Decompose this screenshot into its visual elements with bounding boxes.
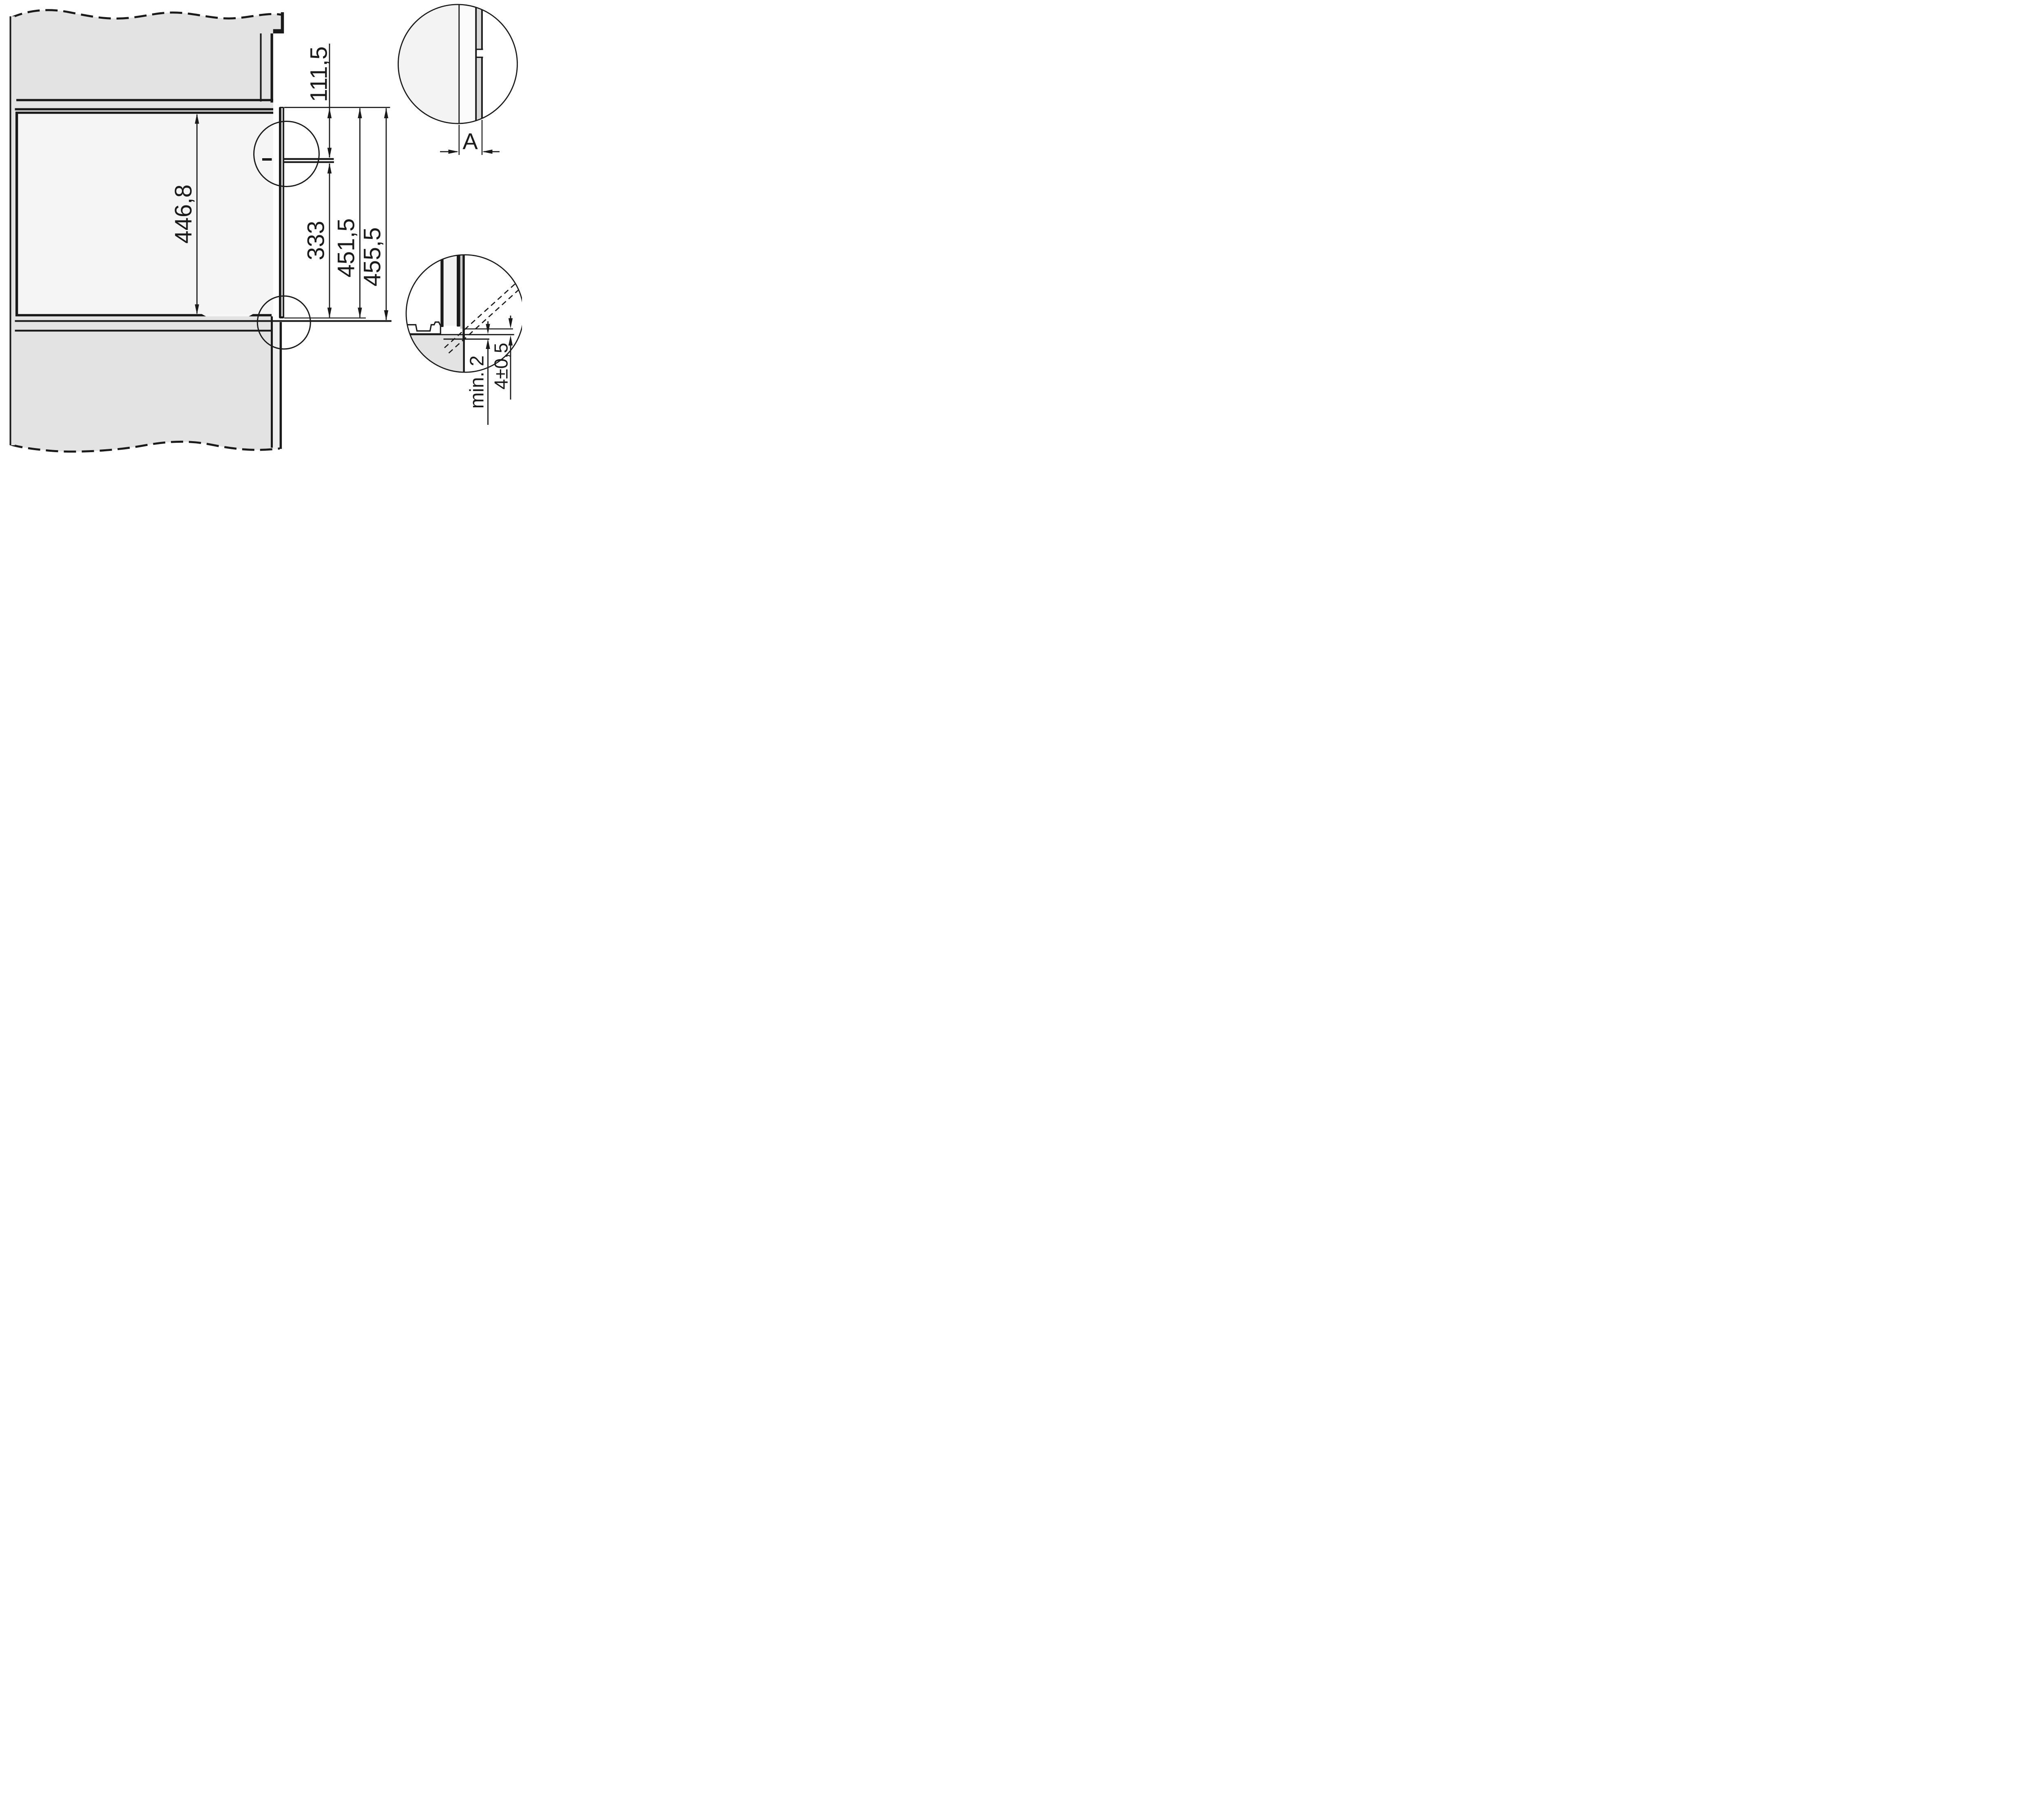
upper-appliance-front [281,12,284,29]
upper-cabinet-body [11,10,281,110]
front-frame-core [281,108,283,316]
detail-frame-core-strip [460,255,463,329]
arrow-up [384,108,388,118]
arrow-up [486,339,490,349]
detail-frame-strip-lower [477,57,481,125]
arrow-right [449,150,459,154]
arrow-down [509,318,513,329]
dimension-A: A [440,120,500,155]
dim-label-bracket-to-bottom: 333 [303,221,330,261]
dim-label-top-to-bracket: 111,5 [306,46,332,102]
detail-frame-right-bar [462,255,465,339]
lower-front-panel-core [273,322,280,449]
dim-label-A: A [462,128,478,154]
detail-shelf-profile [405,322,440,334]
dim-label-niche-height: 446,8 [170,184,197,243]
arrow-up [327,108,332,118]
detail-top-content [397,3,483,126]
mounting-bracket-stub [262,158,272,161]
upper-appliance-bottom-cap [273,29,284,34]
niche-interior [18,114,273,314]
dimension-reveal-tolerance: 4±0,5 [491,316,513,400]
dimension-bracket-to-bottom: 333 [303,163,332,318]
arrow-up [358,108,362,118]
left-wall-core [11,16,15,445]
left-side-wall [11,16,15,445]
dimension-front-frame-height: 451,5 [333,108,362,318]
detail-wall-strip [444,255,457,326]
dim-label-overall-front-height: 455,5 [359,227,386,286]
detail-lower-cabinet [405,336,464,374]
detail-view-top: A [397,3,517,155]
upper-cabinet-section [11,10,284,112]
detail-frame-left-bar [457,255,460,327]
dimension-min-clearance: min. 2 [467,321,490,425]
dim-label-min-clearance: min. 2 [467,356,488,409]
diagram-canvas: 446,8 111,5 333 451,5 455,5 [0,0,522,455]
detail-top-wall-area [397,3,459,126]
dim-label-front-frame-height: 451,5 [333,218,360,277]
rail-gap [11,110,273,112]
detail-top-gap-area [460,3,475,126]
detail-frame-strip-upper [477,3,481,49]
arrow-left [482,150,493,154]
lower-cabinet-body [11,316,280,452]
arrow-down [358,308,362,318]
dim-label-reveal-tolerance: 4±0,5 [491,343,512,390]
dimension-overall-front-height: 455,5 [359,108,389,320]
detail-view-bottom: min. 2 4±0,5 [405,255,522,425]
arrow-down [384,310,388,320]
detail-cabinet-front-bar [440,255,444,327]
arrow-up [327,163,332,174]
installation-diagram: 446,8 111,5 333 451,5 455,5 [0,0,522,455]
arrow-down [327,148,332,158]
appliance-niche [15,112,273,321]
lower-cabinet-section [11,316,391,452]
arrow-down [327,308,332,318]
dimension-top-to-bracket: 111,5 [306,44,332,158]
